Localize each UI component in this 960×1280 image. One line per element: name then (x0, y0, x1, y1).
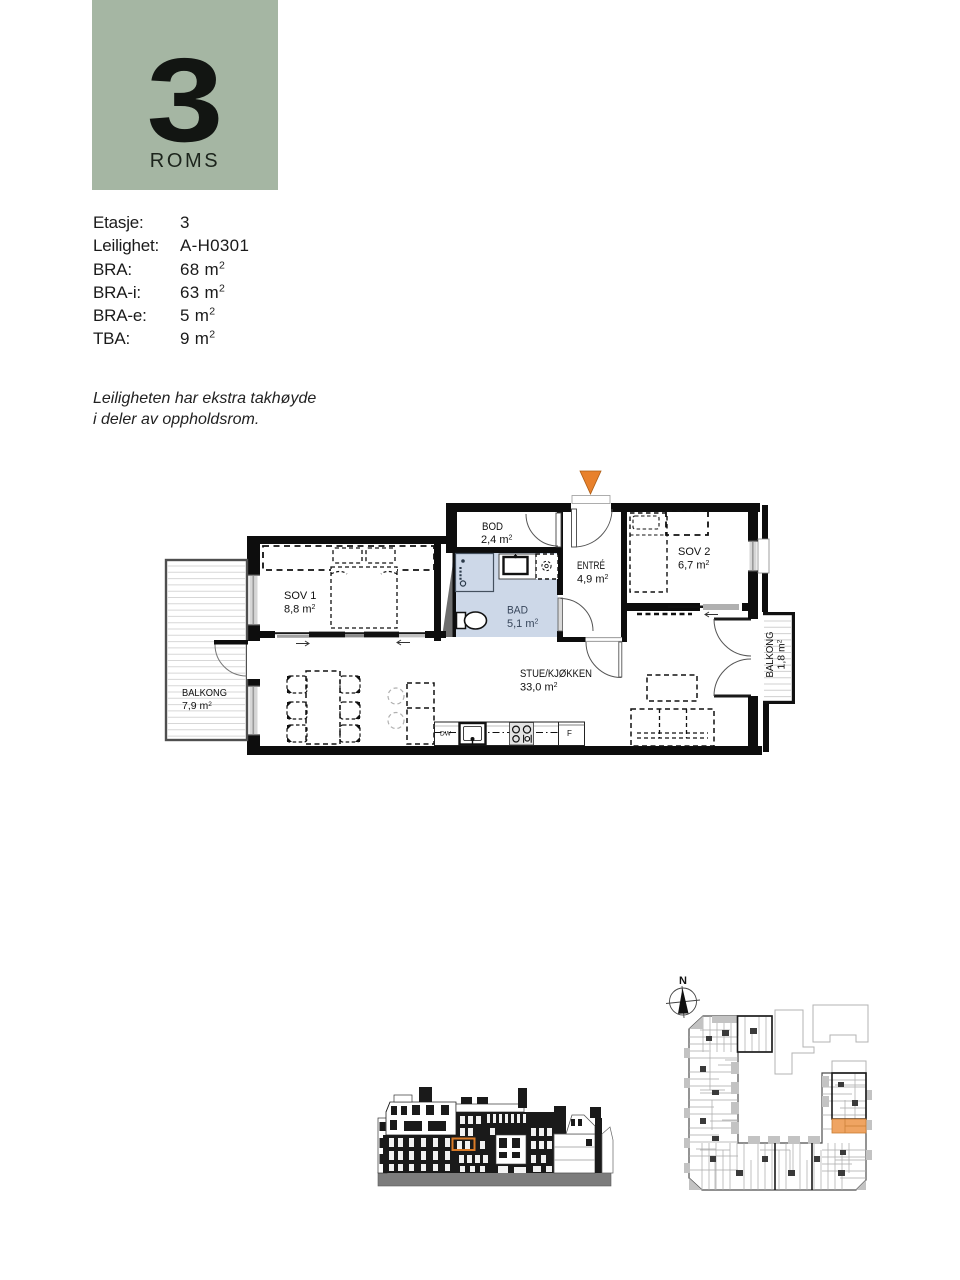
svg-text:8,8 m2: 8,8 m2 (284, 604, 316, 616)
svg-text:33,0 m2: 33,0 m2 (520, 682, 558, 694)
svg-text:BAD: BAD (507, 605, 528, 617)
svg-text:BALKONG: BALKONG (764, 632, 776, 678)
svg-text:BALKONG: BALKONG (182, 687, 227, 699)
svg-text:F: F (567, 729, 572, 738)
svg-text:N: N (679, 975, 687, 987)
svg-text:5,1 m2: 5,1 m2 (507, 618, 539, 630)
svg-text:4,9 m2: 4,9 m2 (577, 574, 609, 586)
svg-text:DW: DW (440, 731, 452, 738)
svg-text:ENTRÉ: ENTRÉ (577, 559, 605, 572)
svg-text:2,4 m2: 2,4 m2 (481, 534, 513, 546)
svg-text:BOD: BOD (482, 521, 503, 533)
svg-text:6,7 m2: 6,7 m2 (678, 560, 710, 572)
svg-text:SOV 2: SOV 2 (678, 546, 710, 558)
svg-text:SOV 1: SOV 1 (284, 590, 316, 602)
svg-text:STUE/KJØKKEN: STUE/KJØKKEN (520, 668, 592, 680)
svg-text:7,9 m2: 7,9 m2 (182, 700, 212, 712)
svg-text:1,8 m2: 1,8 m2 (776, 639, 788, 669)
